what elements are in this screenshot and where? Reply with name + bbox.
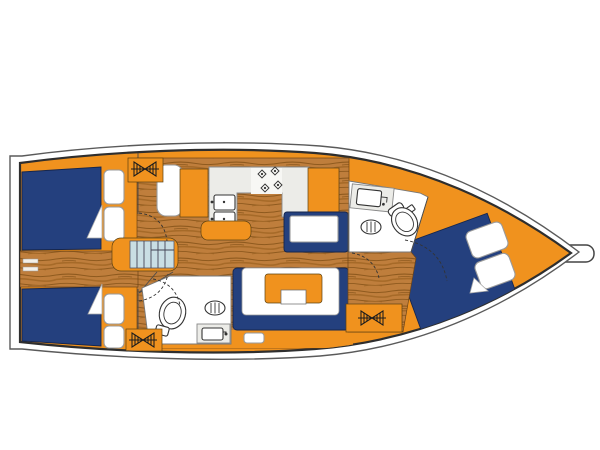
aft-stbd-berth — [22, 287, 101, 346]
galley-cabinet-right — [308, 168, 339, 215]
table-notch — [281, 290, 306, 304]
hanging-locker — [128, 158, 163, 182]
galley-island — [201, 221, 251, 240]
pillow — [104, 170, 124, 204]
settee-cushion — [290, 216, 338, 242]
pillow — [104, 207, 124, 241]
washbasin — [205, 301, 225, 315]
chaise-settee — [284, 212, 348, 252]
aft-cabin-starboard — [22, 284, 124, 348]
pillow — [104, 326, 124, 348]
aft-cabin-port — [22, 167, 124, 250]
settee-step — [244, 333, 264, 343]
yacht-floorplan-diagram — [0, 0, 600, 450]
washbasin — [361, 220, 381, 234]
galley-cabinet-left — [180, 169, 208, 217]
sink-counter — [350, 184, 394, 212]
yacht-floorplan-page — [0, 0, 600, 450]
aft-hatch-step — [23, 267, 38, 271]
pillow — [104, 294, 124, 324]
aft-hatch-step — [23, 259, 38, 263]
sink-counter — [197, 324, 230, 343]
